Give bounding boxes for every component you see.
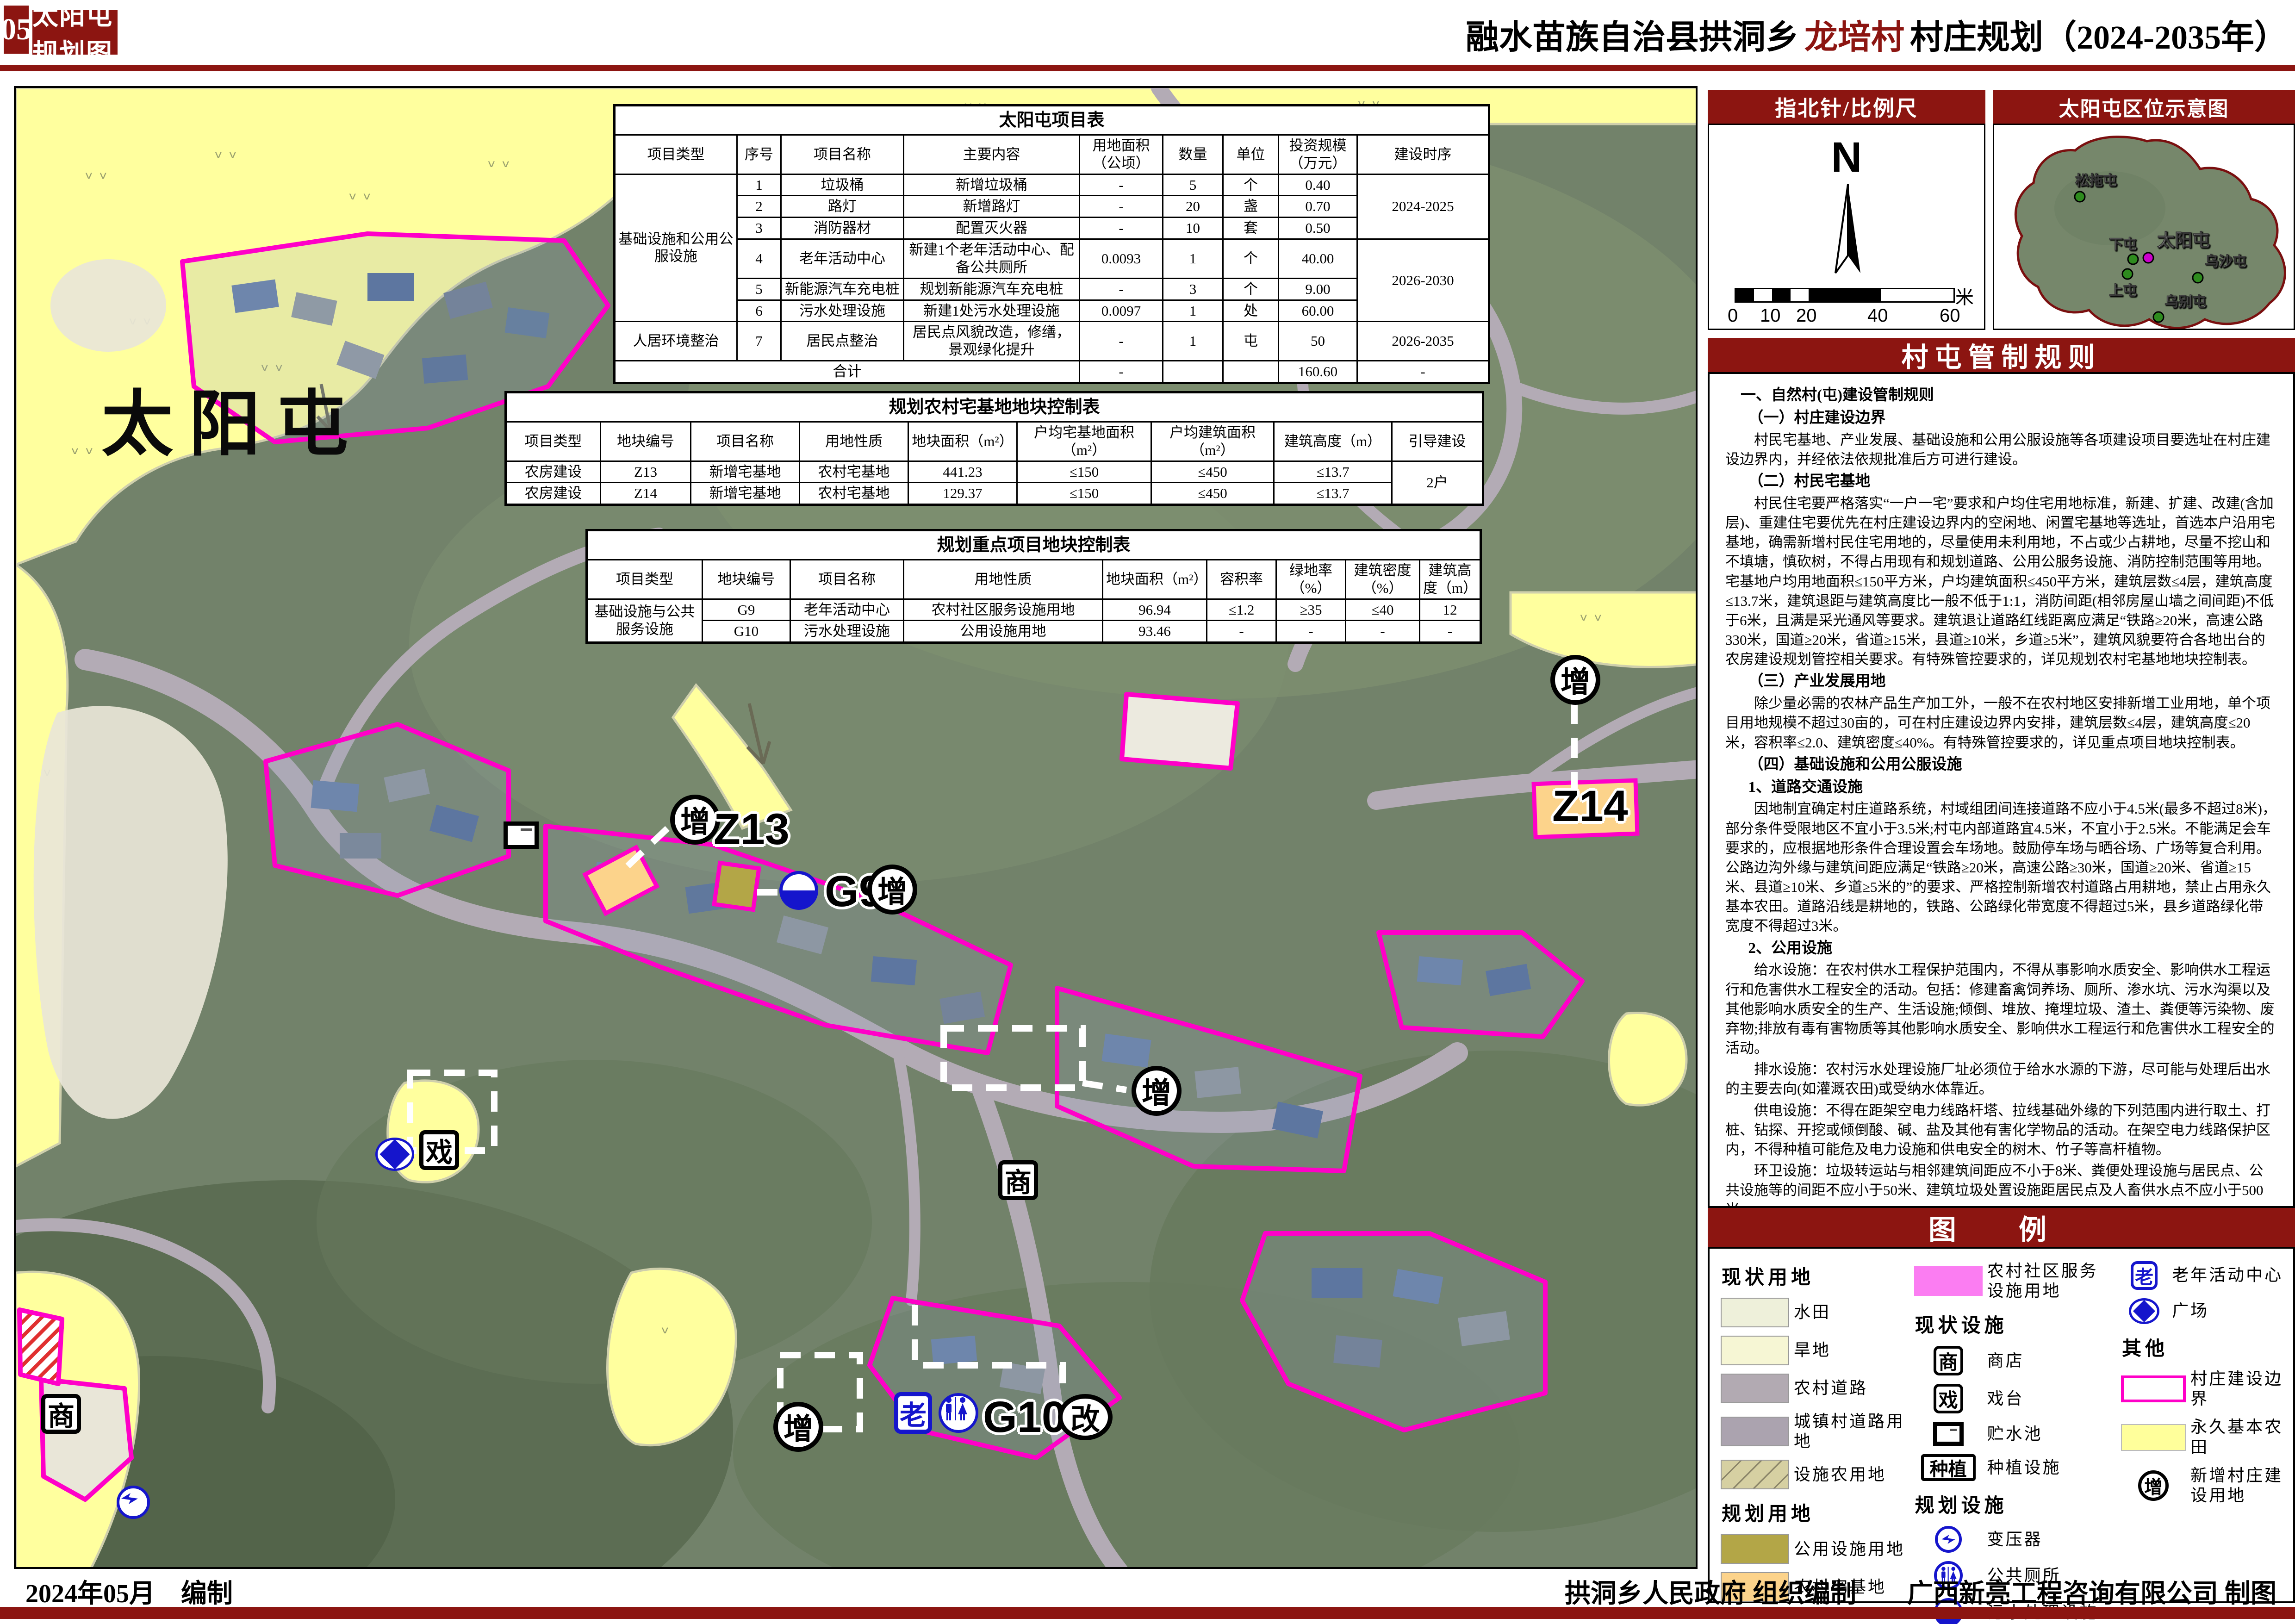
credits: 拱洞乡人民政府 组织编制 广西新亮工程咨询有限公司 制图 [1565,1573,2276,1610]
col-header: 建设时序 [1357,135,1489,174]
rules-paragraph: 村民住宅要严格落实“一户一宅”要求和户均住宅用地标准，新建、扩建、改建(含加层)… [1725,494,2277,669]
rules-panel: 一、自然村(屯)建设管制规则 （一）村庄建设边界 村民宅基地、产业发展、基础设施… [1708,372,2295,1208]
project-table-title: 太阳屯项目表 [615,106,1489,135]
reservoir-icon [1933,1422,1964,1446]
compass-panel: N 米 0 10 20 40 60 [1708,124,1985,330]
rules-heading: （四）基础设施和公用公服设施 [1725,754,2277,775]
rural-road-swatch [1721,1374,1789,1403]
legend-item: 农村道路 [1716,1374,1909,1403]
col-header: 用地面积（公顷） [1080,135,1163,174]
compile-date: 2024年05月 编制 [25,1573,233,1610]
new-land-badge-g9: 增 [867,865,917,915]
sewage-facility-icon [779,871,818,910]
category-cell: 基础设施和公用公服设施 [615,174,737,322]
legend-item: 增新增村庄建设用地 [2116,1466,2287,1506]
stage-icon: 戏 [1934,1384,1963,1413]
cartographer: 广西新亮工程咨询有限公司 制图 [1907,1573,2276,1610]
table-total-row: 合计 - 160.60- [615,361,1489,383]
elder-center-icon: 老 [2131,1261,2158,1290]
legend-section-title: 规划用地 [1722,1498,1909,1526]
legend-col-land: 现状用地 水田 旱地 农村道路 城镇村道路用地 设施农用地 规划用地 公用设施用… [1716,1257,1909,1593]
svg-text:ᵛ ᵛ: ᵛ ᵛ [215,146,237,169]
legend-item: 公用设施用地 [1716,1534,1909,1564]
rules-paragraph: 除少量必需的农林产品生产加工外，一般不在农村地区安排新增工业用地，单个项目用地规… [1725,694,2277,752]
legend-title: 图 例 [1708,1208,2295,1247]
col-header: 单位 [1223,135,1279,174]
legend-panel: 现状用地 水田 旱地 农村道路 城镇村道路用地 设施农用地 规划用地 公用设施用… [1708,1247,2295,1603]
main-title-suffix: 村庄规划（2024-2035年） [1910,10,2288,58]
svg-text:ᵛ ᵛ: ᵛ ᵛ [349,188,371,211]
plan-sheet: 05 太阳屯规划图 融水苗族自治县拱洞乡 龙培村 村庄规划（2024-2035年… [0,0,2295,1624]
project-table: 太阳屯项目表 项目类型 序号 项目名称 主要内容 用地面积（公顷） 数量 单位 … [613,104,1490,384]
scale-bar [1735,288,1955,303]
compass-panel-title: 指北针/比例尺 [1708,90,1985,124]
planting-icon: 种植 [1921,1454,1976,1481]
rules-heading: 一、自然村(屯)建设管制规则 [1725,385,2277,406]
location-map: 松拖屯 下屯 太阳屯 乌沙屯 上屯 乌别屯 [1994,125,2294,329]
svg-text:ᵛ ᵛ: ᵛ ᵛ [71,442,93,465]
village-label: 上屯 [2109,283,2137,299]
new-land-badge-mid: 增 [1132,1066,1182,1116]
location-map-panel: 松拖屯 下屯 太阳屯 乌沙屯 上屯 乌别屯 [1993,124,2295,330]
elder-center-badge: 老 [894,1392,932,1434]
legend-item: 旱地 [1716,1336,1909,1365]
rules-heading: （三）产业发展用地 [1725,671,2277,692]
village-label: 松拖屯 [2075,173,2117,188]
legend-item: 城镇村道路用地 [1716,1412,1909,1451]
table-row: 人居环境整治 7居民点整治居民点风貌改造，修缮，景观绿化提升 -1屯50 202… [615,322,1489,361]
col-header: 主要内容 [904,135,1080,174]
new-land-badge-z14: 增 [1550,655,1600,705]
phase-cell: 2024-2025 [1357,174,1489,239]
village-label: 太阳屯 [2157,231,2210,250]
new-land-badge-south: 增 [773,1402,823,1452]
plaza-icon [2129,1298,2159,1324]
col-header: 数量 [1163,135,1223,174]
rules-paragraph: 排水设施：农村污水处理设施厂址必须位于给水水源的下游，尽可能与处理后出水的主要去… [1725,1060,2277,1099]
legend-item: 广场 [2116,1298,2287,1324]
svg-text:ᵛ ᵛ: ᵛ ᵛ [85,167,107,190]
svg-text:ᵛ ᵛ: ᵛ ᵛ [1580,609,1602,632]
table-row: G10污水处理设施公用设施用地 93.46-- -- [587,621,1481,643]
phase-cell: 2026-2030 [1357,239,1489,322]
legend-item: 设施农用地 [1716,1460,1909,1489]
legend-item: 商商店 [1909,1346,2116,1375]
key-table-title: 规划重点项目地块控制表 [587,530,1481,560]
legend-section-title: 现状用地 [1722,1262,1909,1290]
legend-section-title: 现状设施 [1915,1310,2116,1338]
plot-code-z14: Z14 [1552,781,1628,832]
reservoir-icon [504,821,539,849]
new-land-icon: 增 [2138,1470,2169,1501]
rules-paragraph: 村民宅基地、产业发展、基础设施和公用公服设施等各项建设项目要选址在村庄建设边界内… [1725,430,2277,469]
legend-item: 老老年活动中心 [2116,1261,2287,1290]
table-row: 基础设施和公用公服设施 1垃圾桶新增垃圾桶 -5个0.40 2024-2025 [615,174,1489,196]
legend-item: 变压器 [1909,1526,2116,1553]
new-land-badge-z13: 增 [670,795,720,845]
header-divider [0,65,2295,71]
rules-heading: 1、道路交通设施 [1725,777,2277,798]
plot-code-g10: G10 [983,1392,1066,1443]
main-title-prefix: 融水苗族自治县拱洞乡 [1466,10,1799,58]
table-row: 基础设施与公共服务设施 G9老年活动中心农村社区服务设施用地 96.94≤1.2… [587,599,1481,621]
community-service-swatch [1914,1266,1983,1296]
legend-item: 戏戏台 [1909,1384,2116,1413]
rules-paragraph: 供电设施：不得在距架空电力线路杆塔、拉线基础外缘的下列范围内进行取土、打桩、钻探… [1725,1101,2277,1159]
legend-section-title: 其他 [2122,1333,2287,1361]
table-row: 4老年活动中心新建1个老年活动中心、配备公共厕所 0.00931个40.00 2… [615,239,1489,279]
rules-heading: （二）村民宅基地 [1725,471,2277,492]
legend-item: 农村社区服务设施用地 [1909,1261,2116,1301]
village-label: 乌别屯 [2164,294,2206,310]
public-facility-land-swatch [1721,1534,1789,1564]
rules-panel-title: 村屯管制规则 [1708,338,2295,372]
transformer-icon [117,1486,150,1519]
legend-item: 种植种植设施 [1909,1454,2116,1481]
organizer: 拱洞乡人民政府 组织编制 [1565,1573,1856,1610]
rules-paragraph: 因地制宜确定村庄道路系统，村域组团间连接道路不应小于4.5米(最多不超过8米)，… [1725,799,2277,936]
village-name-label: 太阳屯 [101,366,364,470]
scale-ticks: 0 10 20 40 60 [1728,305,1959,326]
location-panel-title: 太阳屯区位示意图 [1993,90,2295,124]
page-number-badge: 05 [4,6,29,54]
stage-badge: 戏 [419,1130,459,1170]
rules-paragraph: 环卫设施：垃圾转运站与相邻建筑间距应不小于8米、粪便处理设施与居民点、公共设施等… [1725,1161,2277,1208]
public-toilet-icon [939,1393,978,1433]
legend-item: 永久基本农田 [2116,1417,2287,1457]
svg-text:ᵛ ᵛ: ᵛ ᵛ [488,156,510,178]
boundary-swatch [2121,1375,2186,1402]
basic-farmland-swatch [2121,1424,2186,1451]
table-row: 农房建设Z14 新增宅基地农村宅基地 129.37≤150 ≤450≤13.7 [506,483,1483,505]
legend-item: 水田 [1716,1298,1909,1327]
dryland-swatch [1721,1336,1789,1365]
plot-code-z13: Z13 [714,804,790,855]
north-arrow-icon [1827,180,1869,278]
paddy-swatch [1721,1298,1789,1327]
town-road-swatch [1721,1417,1789,1446]
rules-heading: （一）村庄建设边界 [1725,408,2277,429]
legend-col-facilities: 农村社区服务设施用地 现状设施 商商店 戏戏台 贮水池 种植种植设施 规划设施 … [1909,1257,2116,1593]
legend-item: 村庄建设边界 [2116,1369,2287,1409]
col-header: 项目名称 [781,135,904,174]
north-letter: N [1709,133,1984,182]
svg-text:ᵛ: ᵛ [661,1322,670,1344]
rules-paragraph: 给水设施：在农村供水工程保护范围内，不得从事影响水质安全、影响供水工程运行和危害… [1725,960,2277,1058]
main-title-village: 龙培村 [1804,10,1904,58]
transformer-icon [1935,1526,1962,1553]
village-label: 乌沙屯 [2205,254,2246,269]
key-project-table: 规划重点项目地块控制表 项目类型地块编号 项目名称用地性质 地块面积（m²）容积… [585,529,1482,644]
homestead-table-title: 规划农村宅基地地块控制表 [506,392,1483,422]
col-header: 项目类型 [615,135,737,174]
col-header: 序号 [737,135,781,174]
square-plaza-icon [375,1138,414,1171]
col-header: 投资规模（万元） [1279,135,1357,174]
phase-cell: 2026-2035 [1357,322,1489,361]
rules-heading: 2、公用设施 [1725,938,2277,959]
legend-section-title: 规划设施 [1915,1490,2116,1518]
shop-badge-mid: 商 [998,1160,1038,1200]
category-cell: 人居环境整治 [615,322,737,361]
shop-icon: 商 [1934,1346,1963,1375]
shop-badge-southwest: 商 [41,1394,81,1434]
renovate-badge: 改 [1058,1394,1113,1440]
main-title: 融水苗族自治县拱洞乡 龙培村 村庄规划（2024-2035年） [1466,13,2288,55]
village-label: 下屯 [2109,237,2137,252]
homestead-table: 规划农村宅基地地块控制表 项目类型地块编号 项目名称用地性质 地块面积（m²）户… [504,391,1484,506]
table-row: 农房建设Z13 新增宅基地农村宅基地 441.23≤150 ≤450≤13.7 … [506,461,1483,483]
footer-divider [0,1607,2295,1619]
legend-item: 贮水池 [1909,1422,2116,1446]
legend-col-other: 老老年活动中心 广场 其他 村庄建设边界 永久基本农田 增新增村庄建设用地 [2116,1257,2287,1593]
sheet-title-badge: 太阳屯规划图 [32,10,118,55]
facility-farmland-swatch [1721,1460,1789,1489]
